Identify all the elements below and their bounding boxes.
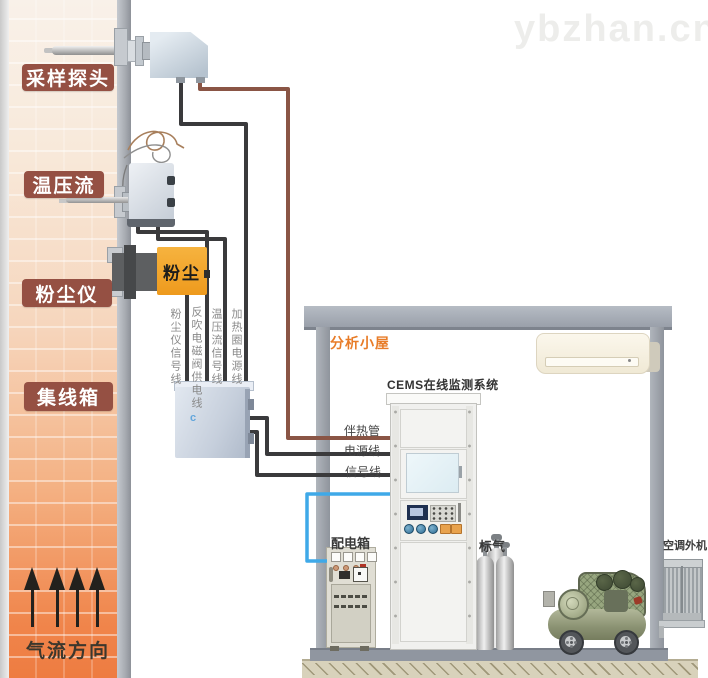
compressor-cylinder-head: [596, 574, 613, 591]
cabinet-rail: [392, 406, 399, 644]
junction-box: [175, 387, 250, 458]
label-dust-meter: 粉尘仪: [22, 279, 112, 307]
dust-meter-unit: 粉尘: [157, 247, 207, 295]
analyzer-button: [440, 524, 451, 534]
ac-outdoor-shelf: [658, 620, 705, 628]
cabinet-door-window: [406, 453, 459, 493]
dust-meter-plate: [124, 245, 136, 299]
sampling-probe-unit: [150, 32, 208, 78]
compressor-wheel: [614, 630, 639, 655]
gas-cylinder: [476, 556, 494, 650]
ac-indoor-unit: [536, 333, 650, 374]
label-tpf-signal-wire: 温压流信号线: [208, 308, 224, 386]
analyzer-keypad: [430, 505, 456, 522]
pbox-meter: [353, 567, 368, 582]
label-sampling-probe-text: 采样探头: [26, 64, 110, 91]
label-cems-system: CEMS在线监测系统: [387, 376, 499, 393]
label-junction-box: 集线箱: [24, 382, 113, 411]
ground-hatching: [302, 659, 698, 678]
analyzer-slider: [458, 503, 461, 522]
shelter-roof: [304, 306, 672, 330]
dust-meter-connector: [204, 270, 210, 278]
gas-cylinder: [496, 556, 514, 650]
label-temp-pressure-flow-text: 温压流: [32, 171, 95, 198]
compressor-cylinder-head: [630, 577, 645, 592]
label-power-line: 电源线: [344, 442, 380, 459]
pbox-switch: [339, 571, 350, 579]
analyzer-knob: [428, 524, 438, 534]
ac-outdoor-bracket-arm: [659, 626, 664, 638]
label-sampling-probe: 采样探头: [22, 64, 114, 91]
ac-indoor-indicator: [628, 359, 631, 362]
dust-meter-unit-text: 粉尘: [163, 259, 201, 284]
pbox-vent-slots: [334, 605, 367, 608]
compressor-cylinder-head: [613, 570, 632, 589]
tpf-base: [127, 219, 175, 227]
junction-box-logo: c: [190, 412, 196, 424]
label-signal-line: 信号线: [345, 463, 381, 480]
label-heat-traced-tube: 伴热管: [344, 422, 380, 439]
analyzer-knob: [404, 524, 414, 534]
ac-indoor-vent: [545, 357, 639, 367]
label-backblow-power-wire: 反吹电磁阀供电线: [188, 306, 204, 410]
analyzer-knob: [416, 524, 426, 534]
watermark: ybzhan.cn: [514, 8, 708, 51]
tpf-latch: [167, 176, 175, 185]
junction-box-hinge: [248, 399, 254, 410]
label-dust-signal-wire: 粉尘仪信号线: [167, 308, 183, 386]
analyzer-screen: [407, 505, 428, 520]
label-airflow-direction: 气流方向: [26, 636, 110, 663]
up-arrow-icon: [69, 567, 85, 629]
up-arrow-icon: [89, 567, 105, 629]
tpf-latch: [167, 198, 175, 207]
stack-left-edge: [0, 0, 9, 678]
analyzer-button: [451, 524, 462, 534]
ac-outdoor-top: [663, 559, 703, 568]
cabinet-blank-panel: [400, 409, 467, 448]
cabinet-rail: [466, 406, 473, 644]
probe-flange: [114, 28, 128, 66]
label-standard-gas: 标气: [479, 536, 505, 555]
ac-outdoor-bottom: [663, 613, 701, 620]
cabinet-lower-panel: [400, 542, 467, 642]
pbox-indicator-windows: [331, 552, 377, 562]
stack-steel-wall: [117, 0, 131, 678]
label-dust-meter-text: 粉尘仪: [35, 280, 98, 307]
cabinet-door-handle: [459, 466, 462, 478]
label-power-distribution-box: 配电箱: [331, 533, 370, 552]
pbox-vent-panel: [331, 584, 371, 643]
pbox-foot: [360, 646, 369, 651]
label-junction-box-text: 集线箱: [37, 383, 100, 410]
compressor-pump: [604, 590, 628, 612]
label-analysis-shelter: 分析小屋: [330, 333, 390, 353]
compressor-switch-box: [543, 591, 555, 607]
cems-system-diagram: 采样探头 温压流 粉尘仪 集线箱 气流方向 分析小屋 粉尘 c: [0, 0, 708, 678]
ac-outdoor-divider: [681, 566, 683, 614]
label-ac-outdoor-unit: 空调外机: [663, 537, 707, 553]
pbox-vent-slots: [334, 595, 367, 598]
compressor-wheel: [559, 630, 584, 655]
up-arrow-icon: [49, 567, 65, 629]
label-heating-power-wire: 加热圈电源线: [228, 308, 244, 386]
tpf-transmitter-box: [129, 163, 174, 222]
up-arrow-icon: [24, 567, 40, 629]
probe-cable-gland: [196, 77, 205, 83]
junction-box-hinge: [248, 433, 254, 444]
label-temp-pressure-flow: 温压流: [24, 171, 104, 198]
shelter-right-wall: [650, 327, 664, 648]
compressor-motor: [558, 589, 589, 620]
pbox-foot: [330, 646, 339, 651]
probe-cable-gland: [176, 77, 185, 83]
pbox-breaker: [329, 567, 333, 582]
pigtail-wire: [128, 132, 184, 151]
